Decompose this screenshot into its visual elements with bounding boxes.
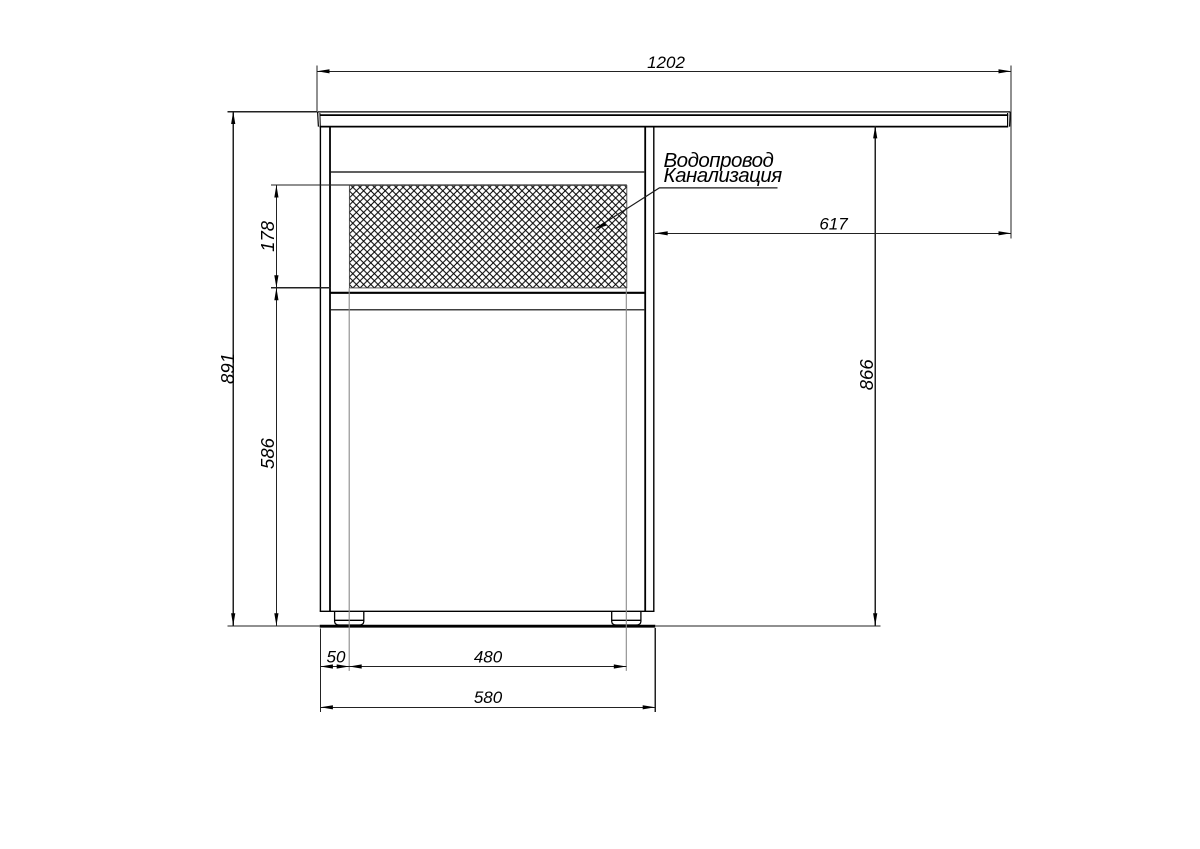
svg-text:891: 891 xyxy=(217,353,238,384)
svg-text:480: 480 xyxy=(474,648,503,667)
svg-text:866: 866 xyxy=(856,359,877,391)
svg-text:1202: 1202 xyxy=(647,53,685,72)
svg-text:Канализация: Канализация xyxy=(664,164,783,187)
svg-text:50: 50 xyxy=(327,648,346,667)
svg-text:580: 580 xyxy=(474,688,503,707)
svg-text:178: 178 xyxy=(257,220,278,252)
svg-text:586: 586 xyxy=(257,437,278,469)
svg-text:617: 617 xyxy=(819,215,848,234)
